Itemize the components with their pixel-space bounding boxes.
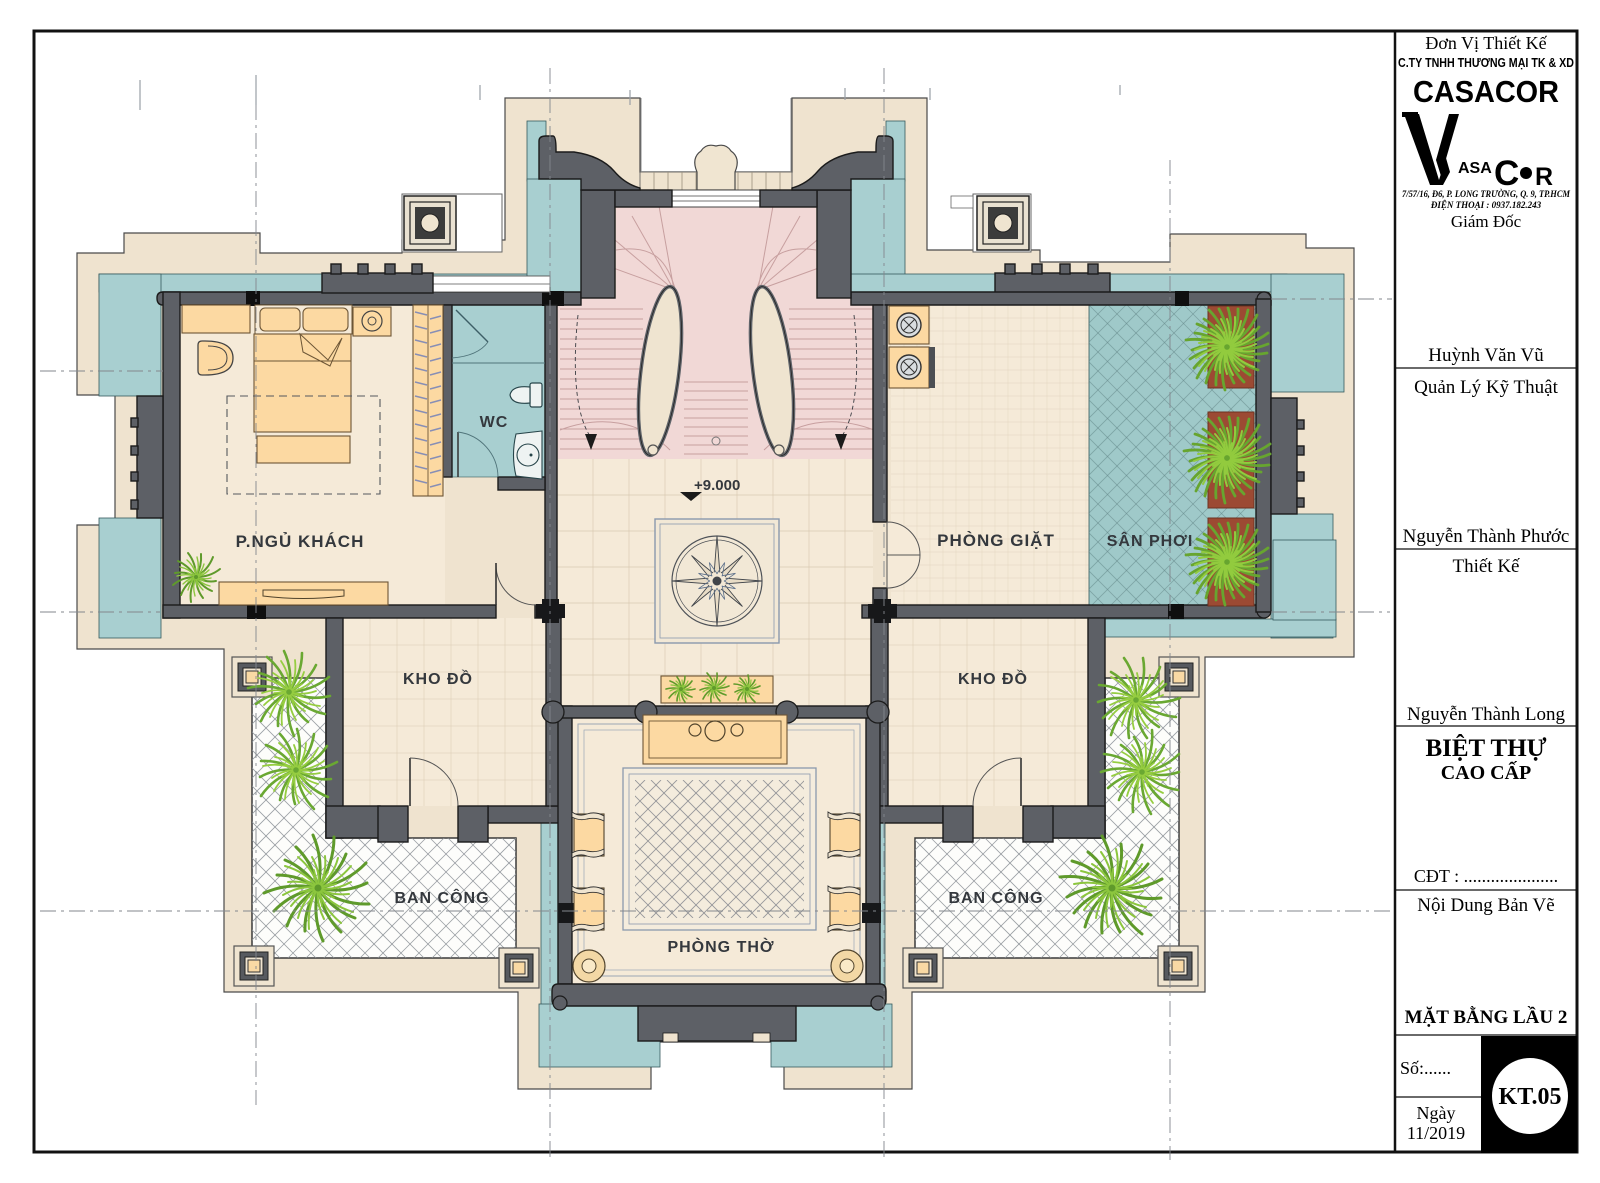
svg-text:PHÒNG GIẶT: PHÒNG GIẶT <box>937 531 1055 550</box>
svg-text:Quản Lý Kỹ Thuật: Quản Lý Kỹ Thuật <box>1414 377 1558 398</box>
svg-text:BIỆT THỰ: BIỆT THỰ <box>1425 734 1546 762</box>
svg-text:ĐIỆN THOẠI : 0937.182.243: ĐIỆN THOẠI : 0937.182.243 <box>1430 200 1542 210</box>
svg-text:BAN CÔNG: BAN CÔNG <box>394 888 489 907</box>
svg-text:MẶT BẰNG LẦU 2: MẶT BẰNG LẦU 2 <box>1405 1006 1568 1028</box>
svg-text:CĐT : .....................: CĐT : ..................... <box>1414 866 1558 886</box>
svg-text:C.TY TNHH THƯƠNG MẠI TK & XD: C.TY TNHH THƯƠNG MẠI TK & XD <box>1398 55 1574 70</box>
svg-text:BAN CÔNG: BAN CÔNG <box>948 888 1043 907</box>
svg-text:C: C <box>1494 154 1519 193</box>
svg-text:Số:......: Số:...... <box>1400 1058 1451 1078</box>
svg-text:Ngày: Ngày <box>1417 1103 1456 1123</box>
svg-text:CAO CẤP: CAO CẤP <box>1441 760 1532 784</box>
svg-text:WC: WC <box>480 414 509 431</box>
svg-text:Đơn Vị Thiết Kế: Đơn Vị Thiết Kế <box>1425 33 1547 53</box>
svg-text:KHO ĐỒ: KHO ĐỒ <box>403 669 473 688</box>
svg-text:KT.05: KT.05 <box>1499 1084 1562 1110</box>
svg-text:PHÒNG THỜ: PHÒNG THỜ <box>667 937 774 956</box>
svg-text:Thiết Kế: Thiết Kế <box>1452 556 1520 577</box>
svg-text:CASACOR: CASACOR <box>1413 74 1559 109</box>
svg-text:ASA: ASA <box>1458 160 1492 177</box>
svg-text:KHO ĐỒ: KHO ĐỒ <box>958 669 1028 688</box>
svg-text:Huỳnh Văn Vũ: Huỳnh Văn Vũ <box>1428 345 1544 366</box>
svg-text:SÂN PHƠI: SÂN PHƠI <box>1107 531 1194 550</box>
svg-text:Giám Đốc: Giám Đốc <box>1451 212 1522 231</box>
svg-text:7/57/16, Đ6, P. LONG TRƯỜNG, Q: 7/57/16, Đ6, P. LONG TRƯỜNG, Q. 9, TP.HC… <box>1402 189 1571 199</box>
svg-text:Nội Dung Bản Vẽ: Nội Dung Bản Vẽ <box>1417 895 1554 916</box>
svg-text:Nguyễn Thành Long: Nguyễn Thành Long <box>1407 704 1565 725</box>
svg-text:P.NGỦ KHÁCH: P.NGỦ KHÁCH <box>236 532 365 551</box>
svg-text:R: R <box>1535 163 1553 191</box>
svg-text:Nguyễn Thành Phước: Nguyễn Thành Phước <box>1403 526 1570 547</box>
svg-text:+9.000: +9.000 <box>694 477 740 494</box>
svg-text:11/2019: 11/2019 <box>1407 1123 1465 1143</box>
